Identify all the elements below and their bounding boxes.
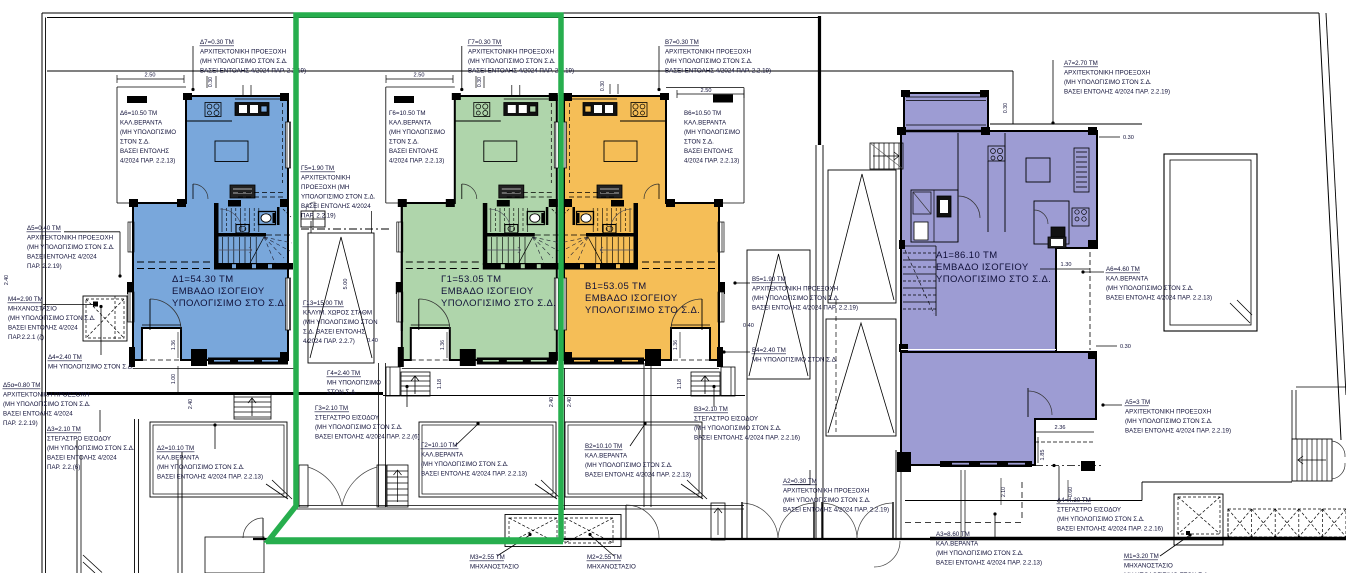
svg-text:(ΜΗ ΥΠΟΛΟΓΙΣΙΜΟ ΣΤΟΝ Σ.Δ.: (ΜΗ ΥΠΟΛΟΓΙΣΙΜΟ ΣΤΟΝ Σ.Δ. xyxy=(315,424,403,431)
svg-text:ΑΡΧΙΤΕΚΤΟΝΙΚΗ ΠΡΟΕΞΟΧΗ: ΑΡΧΙΤΕΚΤΟΝΙΚΗ ΠΡΟΕΞΟΧΗ xyxy=(468,49,554,56)
svg-text:ΑΡΧΙΤΕΚΤΟΝΙΚΗ ΠΡΟΕΞΟΧΗ: ΑΡΧΙΤΕΚΤΟΝΙΚΗ ΠΡΟΕΞΟΧΗ xyxy=(3,392,89,399)
svg-text:ΣΤΟΝ Σ.Δ.: ΣΤΟΝ Σ.Δ. xyxy=(684,139,714,146)
svg-text:(ΜΗ ΥΠΟΛΟΓΙΣΙΜΟ ΣΤΟΝ Σ.Δ.: (ΜΗ ΥΠΟΛΟΓΙΣΙΜΟ ΣΤΟΝ Σ.Δ. xyxy=(1125,418,1213,425)
svg-text:ΚΑΛΥΜ. ΧΩΡΟΣ ΣΤΑΘΜ: ΚΑΛΥΜ. ΧΩΡΟΣ ΣΤΑΘΜ xyxy=(303,310,372,317)
svg-text:ΒΑΣΕΙ ΕΝΤΟΛΗΣ 4/2024 ΠΑΡ. 2.2.: ΒΑΣΕΙ ΕΝΤΟΛΗΣ 4/2024 ΠΑΡ. 2.2.16) xyxy=(694,435,800,442)
svg-text:Δ7=0.30 ΤΜ: Δ7=0.30 ΤΜ xyxy=(200,39,234,46)
svg-text:ΒΑΣΕΙ ΕΝΤΟΛΗΣ 4/2024 ΠΑΡ. 2.2.: ΒΑΣΕΙ ΕΝΤΟΛΗΣ 4/2024 ΠΑΡ. 2.2.13) xyxy=(421,471,527,478)
svg-text:0.30: 0.30 xyxy=(600,81,606,91)
svg-text:Β3=2.10 ΤΜ: Β3=2.10 ΤΜ xyxy=(694,406,728,413)
svg-text:ΕΜΒΑΔΟ ΙΣΟΓΕΙΟΥ: ΕΜΒΑΔΟ ΙΣΟΓΕΙΟΥ xyxy=(172,286,265,297)
svg-text:1.36: 1.36 xyxy=(440,340,446,350)
svg-text:Α6=4.60 ΤΜ: Α6=4.60 ΤΜ xyxy=(1106,266,1140,273)
svg-text:Γ13=15.00 ΤΜ: Γ13=15.00 ΤΜ xyxy=(303,300,343,307)
svg-text:ΕΜΒΑΔΟ ΙΣΟΓΕΙΟΥ: ΕΜΒΑΔΟ ΙΣΟΓΕΙΟΥ xyxy=(936,262,1029,273)
svg-text:ΑΡΧΙΤΕΚΤΟΝΙΚΗ ΠΡΟΕΞΟΧΗ: ΑΡΧΙΤΕΚΤΟΝΙΚΗ ΠΡΟΕΞΟΧΗ xyxy=(27,235,113,242)
svg-text:(ΜΗ ΥΠΟΛΟΓΙΣΙΜΟ ΣΤΟΝ Σ.Δ.: (ΜΗ ΥΠΟΛΟΓΙΣΙΜΟ ΣΤΟΝ Σ.Δ. xyxy=(421,461,509,468)
svg-text:2.40: 2.40 xyxy=(4,275,10,285)
svg-text:ΒΑΣΕΙ ΕΝΤΟΛΗΣ 4/2024 ΠΑΡ. 2.2.: ΒΑΣΕΙ ΕΝΤΟΛΗΣ 4/2024 ΠΑΡ. 2.2.19) xyxy=(200,68,306,75)
svg-text:Γ5=1.90 ΤΜ: Γ5=1.90 ΤΜ xyxy=(301,165,334,172)
svg-text:(ΜΗ ΥΠΟΛΟΓΙΣΙΜΟ ΣΤΟΝ Σ.Δ.: (ΜΗ ΥΠΟΛΟΓΙΣΙΜΟ ΣΤΟΝ Σ.Δ. xyxy=(200,58,288,65)
svg-text:ΣΤΕΓΑΣΤΡΟ ΕΙΣΟΔΟΥ: ΣΤΕΓΑΣΤΡΟ ΕΙΣΟΔΟΥ xyxy=(694,416,758,423)
svg-text:Γ2=10.10 ΤΜ: Γ2=10.10 ΤΜ xyxy=(421,442,458,449)
svg-text:Β2=10.10 ΤΜ: Β2=10.10 ΤΜ xyxy=(585,443,622,450)
svg-text:0.40: 0.40 xyxy=(367,338,378,344)
svg-text:ΑΡΧΙΤΕΚΤΟΝΙΚΗ ΠΡΟΕΞΟΧΗ: ΑΡΧΙΤΕΚΤΟΝΙΚΗ ΠΡΟΕΞΟΧΗ xyxy=(1064,70,1150,77)
svg-text:ΜΗ ΥΠΟΛΟΓΙΣΙΜΟ ΣΤΟΝ Σ.Δ.: ΜΗ ΥΠΟΛΟΓΙΣΙΜΟ ΣΤΟΝ Σ.Δ. xyxy=(48,364,134,371)
svg-text:(ΜΗ ΥΠΟΛΟΓΙΣΙΜΟ ΣΤΟΝ Σ.Δ.: (ΜΗ ΥΠΟΛΟΓΙΣΙΜΟ ΣΤΟΝ Σ.Δ. xyxy=(3,401,91,408)
svg-text:ΑΡΧΙΤΕΚΤΟΝΙΚΗ ΠΡΟΕΞΟΧΗ: ΑΡΧΙΤΕΚΤΟΝΙΚΗ ΠΡΟΕΞΟΧΗ xyxy=(783,488,869,495)
svg-text:(ΜΗ ΥΠΟΛΟΓΙΣΙΜΟ: (ΜΗ ΥΠΟΛΟΓΙΣΙΜΟ xyxy=(120,129,176,136)
svg-text:ΚΑΛ.ΒΕΡΑΝΤΑ: ΚΑΛ.ΒΕΡΑΝΤΑ xyxy=(684,120,727,127)
svg-text:ΜΗ ΥΠΟΛΟΓΙΣΙΜΟ: ΜΗ ΥΠΟΛΟΓΙΣΙΜΟ xyxy=(327,380,381,387)
svg-text:ΒΑΣΕΙ ΕΝΤΟΛΗΣ 4/2024 ΠΑΡ. 2.2.: ΒΑΣΕΙ ΕΝΤΟΛΗΣ 4/2024 ΠΑΡ. 2.2.19) xyxy=(752,305,858,312)
svg-text:Α5=3 ΤΜ: Α5=3 ΤΜ xyxy=(1125,399,1150,406)
svg-text:(ΜΗ ΥΠΟΛΟΓΙΣΙΜΟ ΣΤΟΝ Σ.Δ.: (ΜΗ ΥΠΟΛΟΓΙΣΙΜΟ ΣΤΟΝ Σ.Δ. xyxy=(1106,285,1194,292)
svg-text:(ΜΗ ΥΠΟΛΟΓΙΣΙΜΟ ΣΤΟΝ Σ.Δ.: (ΜΗ ΥΠΟΛΟΓΙΣΙΜΟ ΣΤΟΝ Σ.Δ. xyxy=(8,315,96,322)
svg-text:ΥΠΟΛΟΓΙΣΙΜΟ ΣΤΟΝ Σ.Δ.: ΥΠΟΛΟΓΙΣΙΜΟ ΣΤΟΝ Σ.Δ. xyxy=(301,194,376,201)
svg-text:ΚΑΛ.ΒΕΡΑΝΤΑ: ΚΑΛ.ΒΕΡΑΝΤΑ xyxy=(120,120,163,127)
svg-text:ΠΑΡ.2.2.1 (ζ): ΠΑΡ.2.2.1 (ζ) xyxy=(8,334,44,341)
svg-text:ΒΑΣΕΙ ΕΝΤΟΛΗΣ: ΒΑΣΕΙ ΕΝΤΟΛΗΣ xyxy=(684,148,733,155)
svg-text:4/2024 ΠΑΡ. 2.2.13): 4/2024 ΠΑΡ. 2.2.13) xyxy=(120,158,175,165)
svg-text:ΠΡΟΕΞΟΧΗ (ΜΗ: ΠΡΟΕΞΟΧΗ (ΜΗ xyxy=(301,184,349,191)
svg-text:(ΜΗ ΥΠΟΛΟΓΙΣΙΜΟ ΣΤΟΝ Σ.Δ.: (ΜΗ ΥΠΟΛΟΓΙΣΙΜΟ ΣΤΟΝ Σ.Δ. xyxy=(1064,79,1152,86)
svg-text:Μ2=2.55 ΤΜ: Μ2=2.55 ΤΜ xyxy=(587,554,622,561)
svg-text:1.36: 1.36 xyxy=(171,340,177,350)
svg-text:2.50: 2.50 xyxy=(414,73,425,79)
svg-text:Β7=0.30 ΤΜ: Β7=0.30 ΤΜ xyxy=(665,39,699,46)
svg-text:4/2024 ΠΑΡ. 2.2.13): 4/2024 ΠΑΡ. 2.2.13) xyxy=(684,158,739,165)
svg-text:Σ.Δ. ΒΑΣΕΙ ΕΝΤΟΛΗΣ: Σ.Δ. ΒΑΣΕΙ ΕΝΤΟΛΗΣ xyxy=(303,329,365,336)
svg-text:ΜΗ ΥΠΟΛΟΓΙΣΙΜΟ ΣΤΟΝ Σ.Δ.: ΜΗ ΥΠΟΛΟΓΙΣΙΜΟ ΣΤΟΝ Σ.Δ. xyxy=(752,357,838,364)
svg-text:Β6=10.50 ΤΜ: Β6=10.50 ΤΜ xyxy=(684,110,721,117)
svg-text:(ΜΗ ΥΠΟΛΟΓΙΣΙΜΟ ΣΤΟΝ Σ.Δ.: (ΜΗ ΥΠΟΛΟΓΙΣΙΜΟ ΣΤΟΝ Σ.Δ. xyxy=(585,462,673,469)
svg-text:Δ1=54.30 ΤΜ: Δ1=54.30 ΤΜ xyxy=(172,274,234,285)
svg-text:ΜΗΧΑΝΟΣΤΑΣΙΟ: ΜΗΧΑΝΟΣΤΑΣΙΟ xyxy=(1124,563,1173,570)
svg-text:(ΜΗ ΥΠΟΛΟΓΙΣΙΜΟ ΣΤΟΝ Σ.Δ.: (ΜΗ ΥΠΟΛΟΓΙΣΙΜΟ ΣΤΟΝ Σ.Δ. xyxy=(157,464,245,471)
svg-text:1.18: 1.18 xyxy=(437,379,443,389)
svg-text:ΣΤΕΓΑΣΤΡΟ ΕΙΣΟΔΟΥ: ΣΤΕΓΑΣΤΡΟ ΕΙΣΟΔΟΥ xyxy=(315,415,379,422)
svg-text:ΠΑΡ. 2.2.19): ΠΑΡ. 2.2.19) xyxy=(301,213,336,220)
svg-text:Δ3=2.10 ΤΜ: Δ3=2.10 ΤΜ xyxy=(47,426,81,433)
svg-text:2.36: 2.36 xyxy=(1055,425,1066,431)
svg-text:1.00: 1.00 xyxy=(171,374,177,384)
svg-text:ΣΤΟΝ Σ.Δ.: ΣΤΟΝ Σ.Δ. xyxy=(389,139,419,146)
svg-text:ΚΑΛ.ΒΕΡΑΝΤΑ: ΚΑΛ.ΒΕΡΑΝΤΑ xyxy=(389,120,432,127)
svg-text:(ΜΗ ΥΠΟΛΟΓΙΣΙΜΟ ΣΤΟΝ Σ.Δ.: (ΜΗ ΥΠΟΛΟΓΙΣΙΜΟ ΣΤΟΝ Σ.Δ. xyxy=(936,550,1024,557)
svg-text:(ΜΗ ΥΠΟΛΟΓΙΣΙΜΟ: (ΜΗ ΥΠΟΛΟΓΙΣΙΜΟ xyxy=(389,129,445,136)
svg-text:ΒΑΣΕΙ ΕΝΤΟΛΗΣ 4/2024 ΠΑΡ. 2.2.: ΒΑΣΕΙ ΕΝΤΟΛΗΣ 4/2024 ΠΑΡ. 2.2.19) xyxy=(783,507,889,514)
svg-text:(ΜΗ ΥΠΟΛΟΓΙΣΙΜΟ ΣΤΟΝ Σ.Δ.: (ΜΗ ΥΠΟΛΟΓΙΣΙΜΟ ΣΤΟΝ Σ.Δ. xyxy=(694,425,782,432)
svg-text:Α1=86.10 ΤΜ: Α1=86.10 ΤΜ xyxy=(936,250,998,261)
svg-text:ΒΑΣΕΙ ΕΝΤΟΛΗΣ 4/2024 ΠΑΡ. 2.2.: ΒΑΣΕΙ ΕΝΤΟΛΗΣ 4/2024 ΠΑΡ. 2.2.19) xyxy=(1125,428,1231,435)
svg-text:ΒΑΣΕΙ ΕΝΤΟΛΗΣ 4/2024 ΠΑΡ. 2.2.: ΒΑΣΕΙ ΕΝΤΟΛΗΣ 4/2024 ΠΑΡ. 2.2.19) xyxy=(468,68,574,75)
svg-text:Δ2=10.10 ΤΜ: Δ2=10.10 ΤΜ xyxy=(157,445,194,452)
svg-text:Α3=8.60 ΤΜ: Α3=8.60 ΤΜ xyxy=(936,531,970,538)
svg-text:2.50: 2.50 xyxy=(701,88,712,94)
svg-text:(ΜΗ ΥΠΟΛΟΓΙΣΙΜΟ ΣΤΟΝ Σ.Δ.: (ΜΗ ΥΠΟΛΟΓΙΣΙΜΟ ΣΤΟΝ Σ.Δ. xyxy=(1057,516,1145,523)
svg-text:ΕΜΒΑΔΟ ΙΣΟΓΕΙΟΥ: ΕΜΒΑΔΟ ΙΣΟΓΕΙΟΥ xyxy=(441,286,534,297)
svg-text:ΑΡΧΙΤΕΚΤΟΝΙΚΗ ΠΡΟΕΞΟΧΗ: ΑΡΧΙΤΕΚΤΟΝΙΚΗ ΠΡΟΕΞΟΧΗ xyxy=(665,49,751,56)
svg-text:2.10: 2.10 xyxy=(1001,487,1007,497)
svg-text:ΒΑΣΕΙ ΕΝΤΟΛΗΣ 4/2024 ΠΑΡ. 2.2.: ΒΑΣΕΙ ΕΝΤΟΛΗΣ 4/2024 ΠΑΡ. 2.2.(6) xyxy=(315,434,420,441)
svg-text:ΒΑΣΕΙ ΕΝΤΟΛΗΣ 4/2024 ΠΑΡ. 2.2.: ΒΑΣΕΙ ΕΝΤΟΛΗΣ 4/2024 ΠΑΡ. 2.2.13) xyxy=(585,472,691,479)
svg-text:4/2024 ΠΑΡ. 2.2.13): 4/2024 ΠΑΡ. 2.2.13) xyxy=(389,158,444,165)
svg-text:1.18: 1.18 xyxy=(677,379,683,389)
svg-text:Γ1=53.05 ΤΜ: Γ1=53.05 ΤΜ xyxy=(441,274,501,285)
svg-text:(ΜΗ ΥΠΟΛΟΓΙΣΙΜΟ ΣΤΟΝ Σ.Δ.: (ΜΗ ΥΠΟΛΟΓΙΣΙΜΟ ΣΤΟΝ Σ.Δ. xyxy=(27,244,115,251)
svg-text:ΥΠΟΛΟΓΙΣΙΜΟ ΣΤΟ Σ.Δ.: ΥΠΟΛΟΓΙΣΙΜΟ ΣΤΟ Σ.Δ. xyxy=(172,298,287,309)
svg-text:ΒΑΣΕΙ ΕΝΤΟΛΗΣ 4/2024 ΠΑΡ. 2.2.: ΒΑΣΕΙ ΕΝΤΟΛΗΣ 4/2024 ΠΑΡ. 2.2.16) xyxy=(1057,526,1163,533)
svg-text:ΒΑΣΕΙ ΕΝΤΟΛΗΣ 4/2024: ΒΑΣΕΙ ΕΝΤΟΛΗΣ 4/2024 xyxy=(301,203,371,210)
svg-text:Δ6=10.50 ΤΜ: Δ6=10.50 ΤΜ xyxy=(120,110,157,117)
svg-text:ΑΡΧΙΤΕΚΤΟΝΙΚΗ ΠΡΟΕΞΟΧΗ: ΑΡΧΙΤΕΚΤΟΝΙΚΗ ΠΡΟΕΞΟΧΗ xyxy=(200,49,286,56)
svg-text:ΠΑΡ. 2.2.19): ΠΑΡ. 2.2.19) xyxy=(27,263,62,270)
svg-text:Α7=2.70 ΤΜ: Α7=2.70 ΤΜ xyxy=(1064,60,1098,67)
svg-text:Γ4=2.40 ΤΜ: Γ4=2.40 ΤΜ xyxy=(327,370,360,377)
svg-text:Μ4=2.90 ΤΜ: Μ4=2.90 ΤΜ xyxy=(8,296,43,303)
svg-text:ΚΑΛ.ΒΕΡΑΝΤΑ: ΚΑΛ.ΒΕΡΑΝΤΑ xyxy=(1106,276,1149,283)
svg-text:1.85: 1.85 xyxy=(1040,450,1046,461)
svg-text:ΒΑΣΕΙ ΕΝΤΟΛΗΣ 4/2024 ΠΑΡ. 2.2.: ΒΑΣΕΙ ΕΝΤΟΛΗΣ 4/2024 ΠΑΡ. 2.2.13) xyxy=(936,560,1042,567)
svg-text:Δ5α=0.80 ΤΜ: Δ5α=0.80 ΤΜ xyxy=(3,382,40,389)
svg-text:Β1=53.05 ΤΜ: Β1=53.05 ΤΜ xyxy=(585,281,647,292)
svg-text:Μ1=3.20 ΤΜ: Μ1=3.20 ΤΜ xyxy=(1124,553,1159,560)
svg-text:0.30: 0.30 xyxy=(1120,344,1131,350)
svg-text:ΒΑΣΕΙ ΕΝΤΟΛΗΣ 4/2024: ΒΑΣΕΙ ΕΝΤΟΛΗΣ 4/2024 xyxy=(27,254,97,261)
svg-text:Δ5=0.40 ΤΜ: Δ5=0.40 ΤΜ xyxy=(27,225,61,232)
svg-text:ΑΡΧΙΤΕΚΤΟΝΙΚΗ: ΑΡΧΙΤΕΚΤΟΝΙΚΗ xyxy=(301,175,350,182)
svg-text:Α2=0.30 ΤΜ: Α2=0.30 ΤΜ xyxy=(783,478,817,485)
svg-text:2.40: 2.40 xyxy=(188,399,194,409)
svg-text:ΒΑΣΕΙ ΕΝΤΟΛΗΣ 4/2024: ΒΑΣΕΙ ΕΝΤΟΛΗΣ 4/2024 xyxy=(47,455,117,462)
svg-text:0.30: 0.30 xyxy=(1003,103,1009,113)
svg-text:Μ3=2.55 ΤΜ: Μ3=2.55 ΤΜ xyxy=(470,554,505,561)
svg-text:ΒΑΣΕΙ ΕΝΤΟΛΗΣ 4/2024: ΒΑΣΕΙ ΕΝΤΟΛΗΣ 4/2024 xyxy=(3,411,73,418)
svg-text:ΒΑΣΕΙ ΕΝΤΟΛΗΣ 4/2024 ΠΑΡ. 2.2.: ΒΑΣΕΙ ΕΝΤΟΛΗΣ 4/2024 ΠΑΡ. 2.2.19) xyxy=(665,68,771,75)
svg-text:ΚΑΛ.ΒΕΡΑΝΤΑ: ΚΑΛ.ΒΕΡΑΝΤΑ xyxy=(157,455,200,462)
svg-text:2.40: 2.40 xyxy=(549,397,555,407)
svg-text:ΠΑΡ. 2.2.19): ΠΑΡ. 2.2.19) xyxy=(3,420,38,427)
svg-text:2.40: 2.40 xyxy=(567,397,573,407)
svg-text:ΒΑΣΕΙ ΕΝΤΟΛΗΣ: ΒΑΣΕΙ ΕΝΤΟΛΗΣ xyxy=(389,148,438,155)
svg-text:ΥΠΟΛΟΓΙΣΙΜΟ ΣΤΟ Σ.Δ.: ΥΠΟΛΟΓΙΣΙΜΟ ΣΤΟ Σ.Δ. xyxy=(585,305,700,316)
svg-text:ΣΤΟΝ Σ.Δ.: ΣΤΟΝ Σ.Δ. xyxy=(327,389,357,396)
svg-text:(ΜΗ ΥΠΟΛΟΓΙΣΙΜΟ ΣΤΟΝ: (ΜΗ ΥΠΟΛΟΓΙΣΙΜΟ ΣΤΟΝ xyxy=(303,319,378,326)
svg-text:Α4=4.30 ΤΜ: Α4=4.30 ΤΜ xyxy=(1057,497,1091,504)
svg-text:ΜΗΧΑΝΟΣΤΑΣΙΟ: ΜΗΧΑΝΟΣΤΑΣΙΟ xyxy=(8,306,57,313)
svg-text:ΣΤΟΝ Σ.Δ.: ΣΤΟΝ Σ.Δ. xyxy=(120,139,150,146)
svg-text:ΚΑΛ.ΒΕΡΑΝΤΑ: ΚΑΛ.ΒΕΡΑΝΤΑ xyxy=(421,452,464,459)
svg-text:(ΜΗ ΥΠΟΛΟΓΙΣΙΜΟ ΣΤΟΝ Σ.Δ.: (ΜΗ ΥΠΟΛΟΓΙΣΙΜΟ ΣΤΟΝ Σ.Δ. xyxy=(665,58,753,65)
svg-text:ΚΑΛ.ΒΕΡΑΝΤΑ: ΚΑΛ.ΒΕΡΑΝΤΑ xyxy=(585,453,628,460)
svg-text:1.36: 1.36 xyxy=(673,340,679,350)
svg-text:Γ7=0.30 ΤΜ: Γ7=0.30 ΤΜ xyxy=(468,39,501,46)
svg-text:5.00: 5.00 xyxy=(343,279,349,290)
svg-text:(ΜΗ ΥΠΟΛΟΓΙΣΙΜΟ ΣΤΟΝ Σ.Δ.: (ΜΗ ΥΠΟΛΟΓΙΣΙΜΟ ΣΤΟΝ Σ.Δ. xyxy=(468,58,556,65)
svg-text:0.30: 0.30 xyxy=(208,77,214,87)
svg-text:Γ6=10.50 ΤΜ: Γ6=10.50 ΤΜ xyxy=(389,110,426,117)
svg-text:ΥΠΟΛΟΓΙΣΙΜΟ ΣΤΟ Σ.Δ.: ΥΠΟΛΟΓΙΣΙΜΟ ΣΤΟ Σ.Δ. xyxy=(936,274,1051,285)
svg-text:(ΜΗ ΥΠΟΛΟΓΙΣΙΜΟ ΣΤΟΝ Σ.Δ.: (ΜΗ ΥΠΟΛΟΓΙΣΙΜΟ ΣΤΟΝ Σ.Δ. xyxy=(752,295,840,302)
svg-text:Β5=1.90 ΤΜ: Β5=1.90 ΤΜ xyxy=(752,276,786,283)
svg-text:ΜΗΧΑΝΟΣΤΑΣΙΟ: ΜΗΧΑΝΟΣΤΑΣΙΟ xyxy=(470,564,519,571)
svg-text:2.50: 2.50 xyxy=(145,73,156,79)
svg-text:0.60: 0.60 xyxy=(1068,487,1074,497)
svg-text:Β4=2.40 ΤΜ: Β4=2.40 ΤΜ xyxy=(752,347,786,354)
svg-text:Δ4=2.40 ΤΜ: Δ4=2.40 ΤΜ xyxy=(48,354,82,361)
svg-text:ΒΑΣΕΙ ΕΝΤΟΛΗΣ 4/2024 ΠΑΡ. 2.2.: ΒΑΣΕΙ ΕΝΤΟΛΗΣ 4/2024 ΠΑΡ. 2.2.19) xyxy=(1064,89,1170,96)
svg-text:(ΜΗ ΥΠΟΛΟΓΙΣΙΜΟ ΣΤΟΝ Σ.Δ.: (ΜΗ ΥΠΟΛΟΓΙΣΙΜΟ ΣΤΟΝ Σ.Δ. xyxy=(783,497,871,504)
svg-text:ΠΑΡ. 2.2.(6): ΠΑΡ. 2.2.(6) xyxy=(47,464,80,471)
svg-text:ΕΜΒΑΔΟ ΙΣΟΓΕΙΟΥ: ΕΜΒΑΔΟ ΙΣΟΓΕΙΟΥ xyxy=(585,293,678,304)
svg-text:ΣΤΕΓΑΣΤΡΟ ΕΙΣΟΔΟΥ: ΣΤΕΓΑΣΤΡΟ ΕΙΣΟΔΟΥ xyxy=(47,436,111,443)
svg-text:ΥΠΟΛΟΓΙΣΙΜΟ ΣΤΟ Σ.Δ.: ΥΠΟΛΟΓΙΣΙΜΟ ΣΤΟ Σ.Δ. xyxy=(441,298,556,309)
svg-text:ΒΑΣΕΙ ΕΝΤΟΛΗΣ 4/2024: ΒΑΣΕΙ ΕΝΤΟΛΗΣ 4/2024 xyxy=(8,325,78,332)
svg-text:ΜΗΧΑΝΟΣΤΑΣΙΟ: ΜΗΧΑΝΟΣΤΑΣΙΟ xyxy=(587,564,636,571)
svg-text:ΑΡΧΙΤΕΚΤΟΝΙΚΗ ΠΡΟΕΞΟΧΗ: ΑΡΧΙΤΕΚΤΟΝΙΚΗ ΠΡΟΕΞΟΧΗ xyxy=(752,286,838,293)
svg-text:ΣΤΕΓΑΣΤΡΟ ΕΙΣΟΔΟΥ: ΣΤΕΓΑΣΤΡΟ ΕΙΣΟΔΟΥ xyxy=(1057,507,1121,514)
svg-text:Γ3=2.10 ΤΜ: Γ3=2.10 ΤΜ xyxy=(315,405,348,412)
svg-text:ΒΑΣΕΙ ΕΝΤΟΛΗΣ: ΒΑΣΕΙ ΕΝΤΟΛΗΣ xyxy=(120,148,169,155)
svg-text:1.30: 1.30 xyxy=(1061,262,1072,268)
svg-text:4/2024 ΠΑΡ. 2.2.7): 4/2024 ΠΑΡ. 2.2.7) xyxy=(303,338,355,345)
svg-text:0.30: 0.30 xyxy=(1123,135,1134,141)
svg-text:0.30: 0.30 xyxy=(477,77,483,87)
svg-text:ΒΑΣΕΙ ΕΝΤΟΛΗΣ 4/2024 ΠΑΡ. 2.2.: ΒΑΣΕΙ ΕΝΤΟΛΗΣ 4/2024 ΠΑΡ. 2.2.13) xyxy=(1106,295,1212,302)
svg-text:ΑΡΧΙΤΕΚΤΟΝΙΚΗ ΠΡΟΕΞΟΧΗ: ΑΡΧΙΤΕΚΤΟΝΙΚΗ ΠΡΟΕΞΟΧΗ xyxy=(1125,409,1211,416)
svg-text:ΚΑΛ.ΒΕΡΑΝΤΑ: ΚΑΛ.ΒΕΡΑΝΤΑ xyxy=(936,541,979,548)
svg-text:ΒΑΣΕΙ ΕΝΤΟΛΗΣ 4/2024 ΠΑΡ. 2.2.: ΒΑΣΕΙ ΕΝΤΟΛΗΣ 4/2024 ΠΑΡ. 2.2.13) xyxy=(157,474,263,481)
svg-text:(ΜΗ ΥΠΟΛΟΓΙΣΙΜΟ: (ΜΗ ΥΠΟΛΟΓΙΣΙΜΟ xyxy=(684,129,740,136)
svg-text:0.40: 0.40 xyxy=(743,323,754,329)
svg-text:(ΜΗ ΥΠΟΛΟΓΙΣΙΜΟ ΣΤΟΝ Σ.Δ.: (ΜΗ ΥΠΟΛΟΓΙΣΙΜΟ ΣΤΟΝ Σ.Δ. xyxy=(47,445,135,452)
